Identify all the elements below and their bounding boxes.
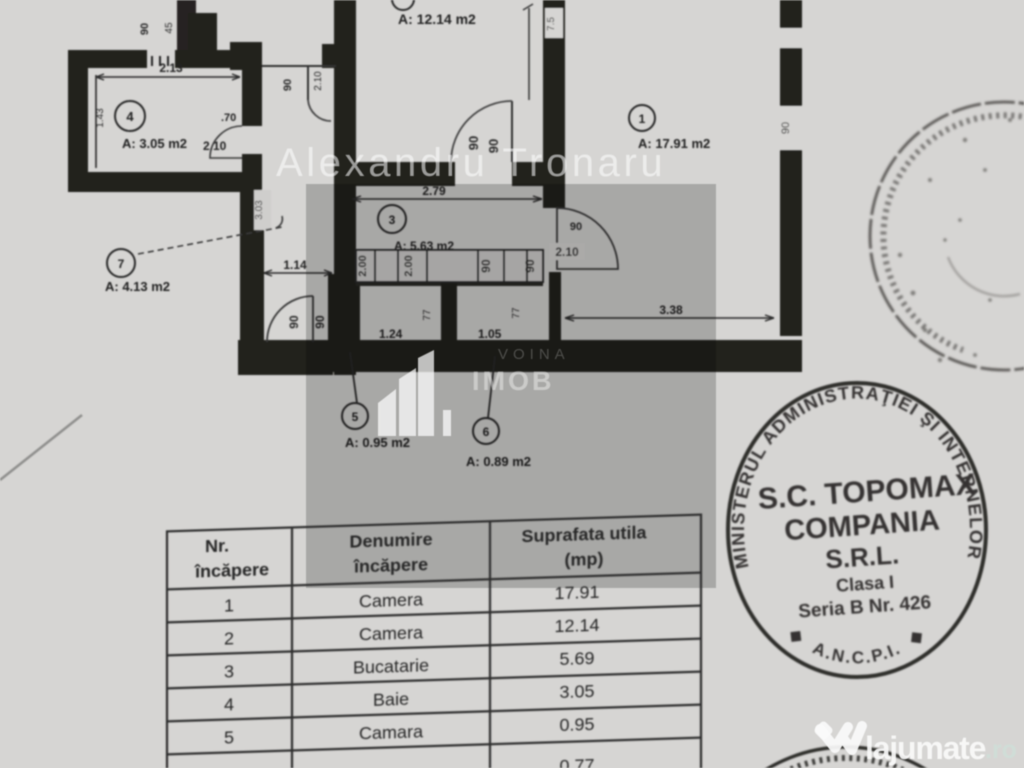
svg-text:45: 45: [164, 22, 175, 34]
svg-text:2.10: 2.10: [313, 71, 324, 91]
svg-text:5.69: 5.69: [559, 648, 594, 669]
svg-text:2: 2: [224, 628, 234, 648]
svg-text:0.95: 0.95: [559, 714, 594, 735]
svg-text:încăpere: încăpere: [353, 554, 428, 576]
svg-text:Bucatarie: Bucatarie: [353, 655, 429, 677]
svg-text:Camera: Camera: [359, 589, 424, 611]
svg-text:A: 3.05 m2: A: 3.05 m2: [122, 136, 187, 151]
svg-text:90: 90: [282, 79, 294, 91]
svg-text:3.05: 3.05: [559, 681, 594, 702]
svg-text:Nr.: Nr.: [205, 535, 229, 556]
svg-text:1.14: 1.14: [283, 258, 307, 272]
svg-text:1: 1: [224, 595, 234, 615]
svg-text:Suprafata utila: Suprafata utila: [521, 522, 647, 546]
svg-text:.ro: .ro: [985, 736, 1017, 764]
svg-text:90: 90: [780, 122, 792, 134]
svg-text:A: 12.14 m2: A: 12.14 m2: [398, 11, 476, 27]
svg-text:S.R.L.: S.R.L.: [824, 539, 900, 574]
svg-text:Alexandru Tronaru: Alexandru Tronaru: [276, 141, 666, 185]
svg-text:12.14: 12.14: [554, 615, 599, 636]
svg-text:Clasa I: Clasa I: [835, 572, 894, 596]
svg-text:lajumate: lajumate: [865, 730, 986, 766]
svg-text:0.77: 0.77: [559, 755, 594, 768]
svg-text:4: 4: [224, 694, 234, 714]
svg-text:4: 4: [126, 109, 134, 124]
svg-text:încăpere: încăpere: [194, 559, 269, 581]
svg-text:1: 1: [639, 112, 646, 126]
svg-text:Camara: Camara: [359, 721, 424, 743]
svg-text:3.03: 3.03: [254, 200, 265, 220]
svg-text:(mp): (mp): [565, 549, 604, 570]
svg-text:VOINA: VOINA: [498, 346, 570, 363]
svg-text:2.13: 2.13: [159, 61, 183, 75]
svg-text:Denumire: Denumire: [349, 529, 432, 552]
svg-text:A: 4.13 m2: A: 4.13 m2: [105, 279, 170, 294]
svg-text:7: 7: [118, 257, 125, 271]
svg-text:5: 5: [224, 727, 234, 747]
svg-text:Camera: Camera: [359, 622, 424, 644]
svg-text:90: 90: [139, 23, 151, 35]
svg-text:.70: .70: [221, 112, 236, 124]
svg-text:IMOB: IMOB: [472, 366, 555, 396]
svg-text:17.91: 17.91: [554, 582, 599, 603]
svg-text:90: 90: [287, 315, 301, 329]
svg-text:1.43: 1.43: [95, 108, 106, 128]
svg-text:Baie: Baie: [373, 689, 409, 710]
svg-text:3: 3: [224, 661, 234, 681]
svg-text:7.5: 7.5: [546, 17, 557, 31]
